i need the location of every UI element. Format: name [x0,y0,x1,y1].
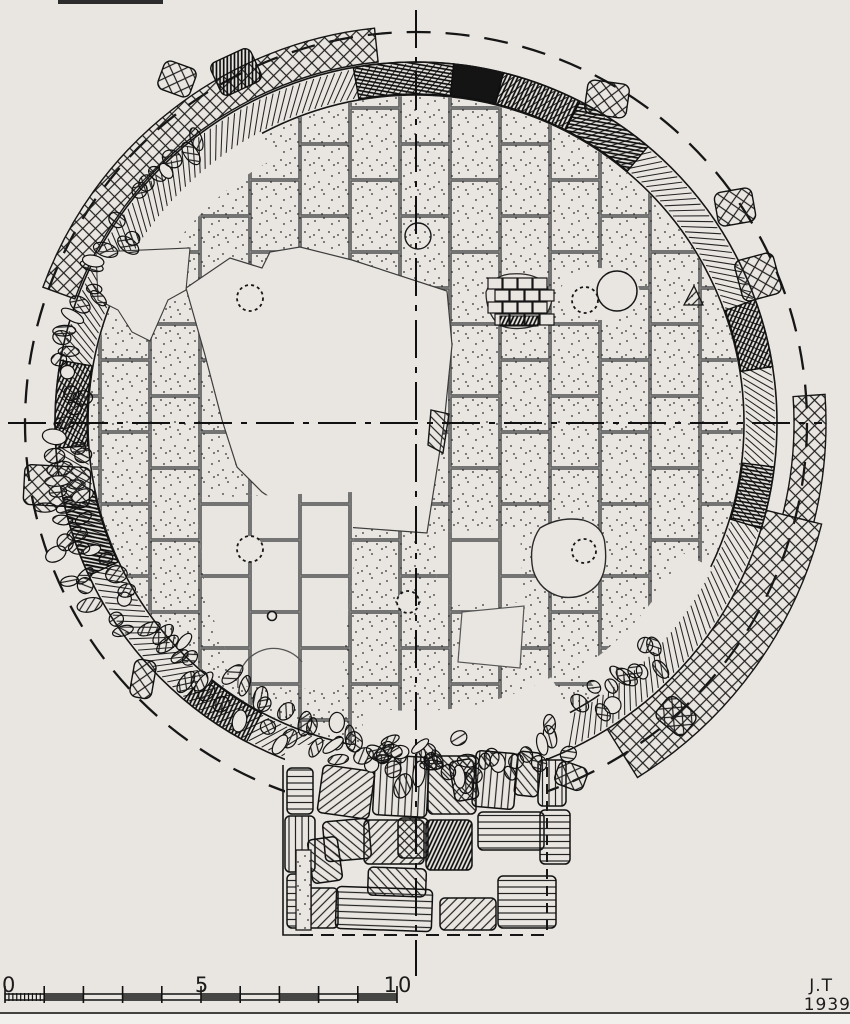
excavation-plan-drawing: 0 5 10 J.T 1939 [0,0,850,1024]
scan-artifact [58,0,163,4]
small-socket [268,612,277,621]
signature-year: 1939 [804,995,850,1015]
white-slab-quad [458,606,524,668]
scale-label-0: 0 [2,973,16,997]
brick-feature [486,274,554,329]
pit-dotted-circle [237,536,263,562]
scale-label-5: 5 [195,973,209,997]
sheet-margin [0,1014,850,1024]
plan-sheet: 0 5 10 J.T 1939 [0,0,850,1024]
entrance-structure [283,745,570,937]
pit-dotted-circle [237,285,263,311]
pit-circle [597,271,637,311]
scale-label-10: 10 [384,973,413,997]
signature-initials: J.T [808,976,833,996]
pit-dotted-circle [572,287,598,313]
